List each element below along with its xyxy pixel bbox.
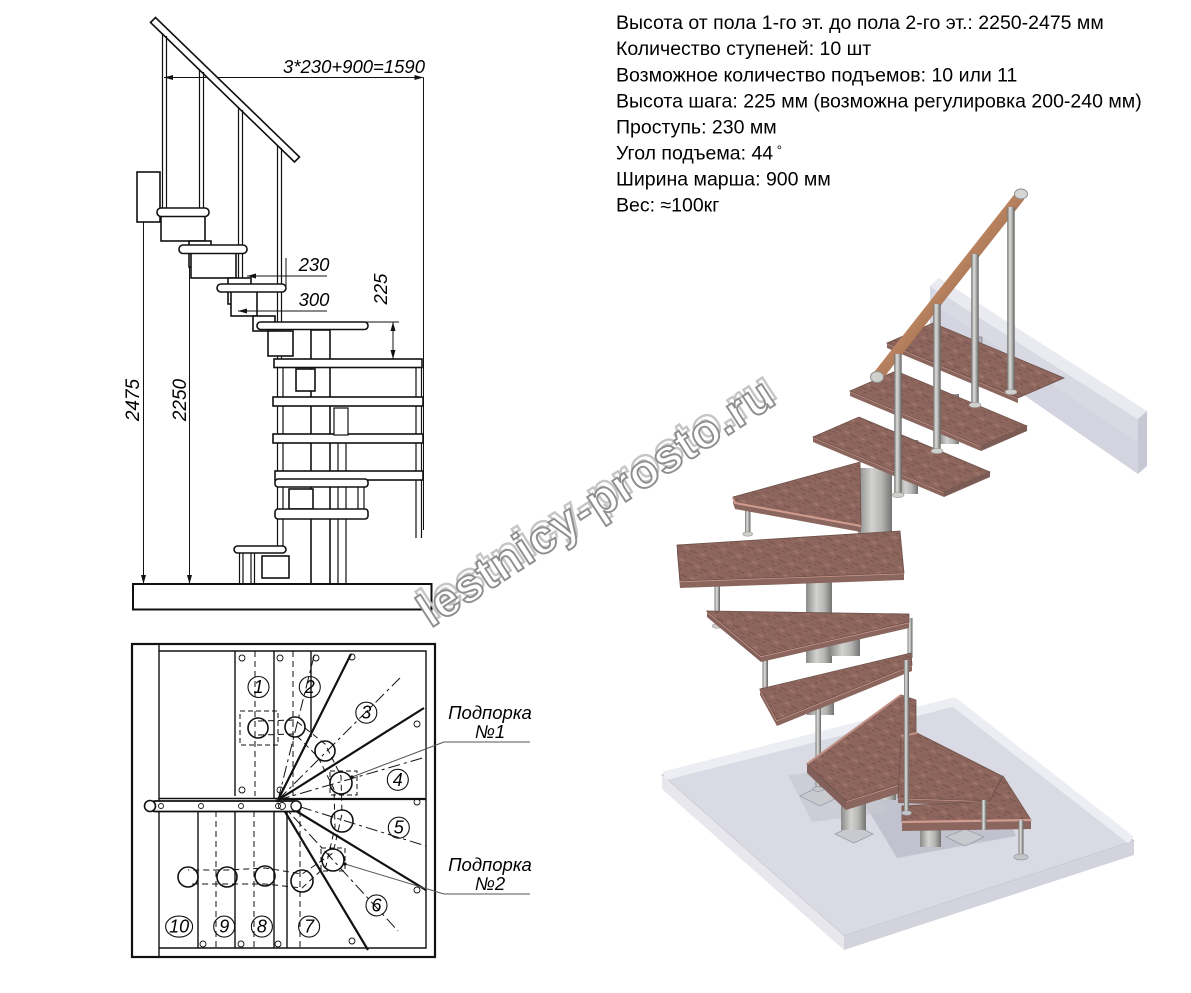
svg-text:8: 8	[257, 917, 267, 937]
svg-text:3: 3	[361, 703, 371, 723]
svg-text:Подпорка: Подпорка	[448, 854, 532, 875]
svg-text:2250: 2250	[170, 378, 191, 422]
svg-text:300: 300	[299, 289, 331, 310]
svg-text:7: 7	[304, 917, 315, 937]
svg-text:Подпорка: Подпорка	[448, 702, 532, 723]
svg-text:2475: 2475	[123, 378, 144, 422]
svg-text:№2: №2	[475, 873, 506, 894]
svg-text:Высота от пола 1-го эт. до пол: Высота от пола 1-го эт. до пола 2-го эт.…	[616, 12, 1104, 34]
svg-text:3*230+900=1590: 3*230+900=1590	[283, 56, 426, 77]
svg-text:Высота шага: 225 мм (возможна: Высота шага: 225 мм (возможна регулировк…	[616, 91, 1142, 113]
svg-text:Вес: ≈100кг: Вес: ≈100кг	[616, 195, 719, 217]
svg-text:Ширина марша: 900 мм: Ширина марша: 900 мм	[616, 169, 831, 191]
svg-text:4: 4	[393, 770, 403, 790]
svg-text:lestnicy-prosto.ru: lestnicy-prosto.ru	[407, 366, 784, 636]
svg-text:1: 1	[253, 677, 263, 697]
svg-text:5: 5	[394, 818, 405, 838]
svg-text:Проступь: 230 мм: Проступь: 230 мм	[616, 117, 777, 139]
svg-text:Количество ступеней: 10 шт: Количество ступеней: 10 шт	[616, 38, 871, 60]
svg-text:Возможное количество подъемов:: Возможное количество подъемов: 10 или 11	[616, 65, 1017, 87]
svg-text:2: 2	[304, 677, 315, 697]
svg-text:№1: №1	[475, 721, 505, 742]
svg-text:230: 230	[298, 254, 331, 275]
svg-text:9: 9	[219, 917, 229, 937]
svg-text:225: 225	[370, 273, 391, 306]
svg-text:6: 6	[371, 895, 382, 915]
svg-text:Угол подъема: 44 °: Угол подъема: 44 °	[616, 143, 782, 165]
svg-text:10: 10	[169, 917, 189, 937]
